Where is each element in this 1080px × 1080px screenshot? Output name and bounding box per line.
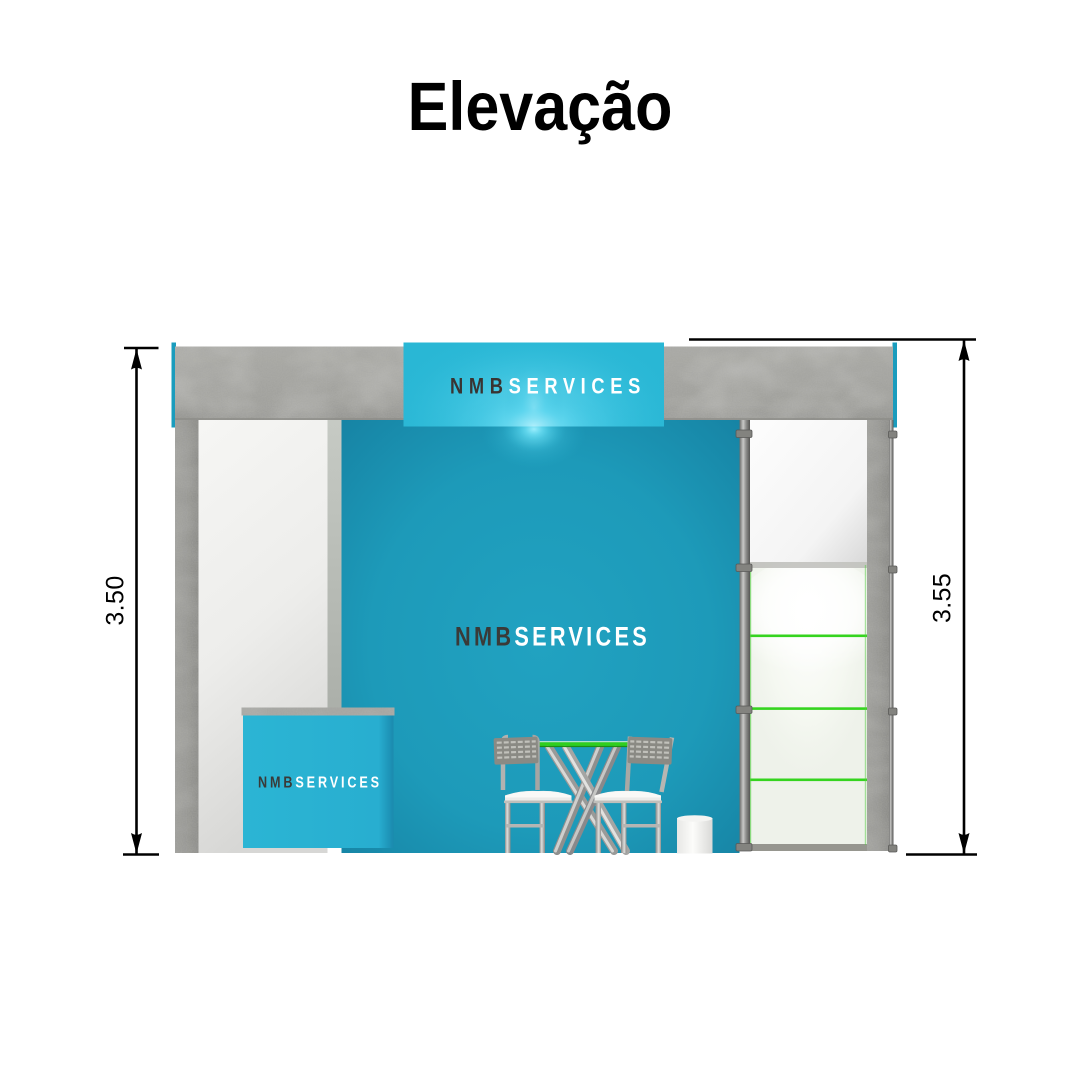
svg-text:NMBSERVICES: NMBSERVICES [455,623,650,653]
svg-text:3.50: 3.50 [102,575,130,625]
svg-text:Elevação: Elevação [408,68,673,145]
svg-text:3.55: 3.55 [929,573,957,623]
svg-text:NMBSERVICES: NMBSERVICES [258,773,382,790]
svg-text:NMBSERVICES: NMBSERVICES [450,375,646,399]
